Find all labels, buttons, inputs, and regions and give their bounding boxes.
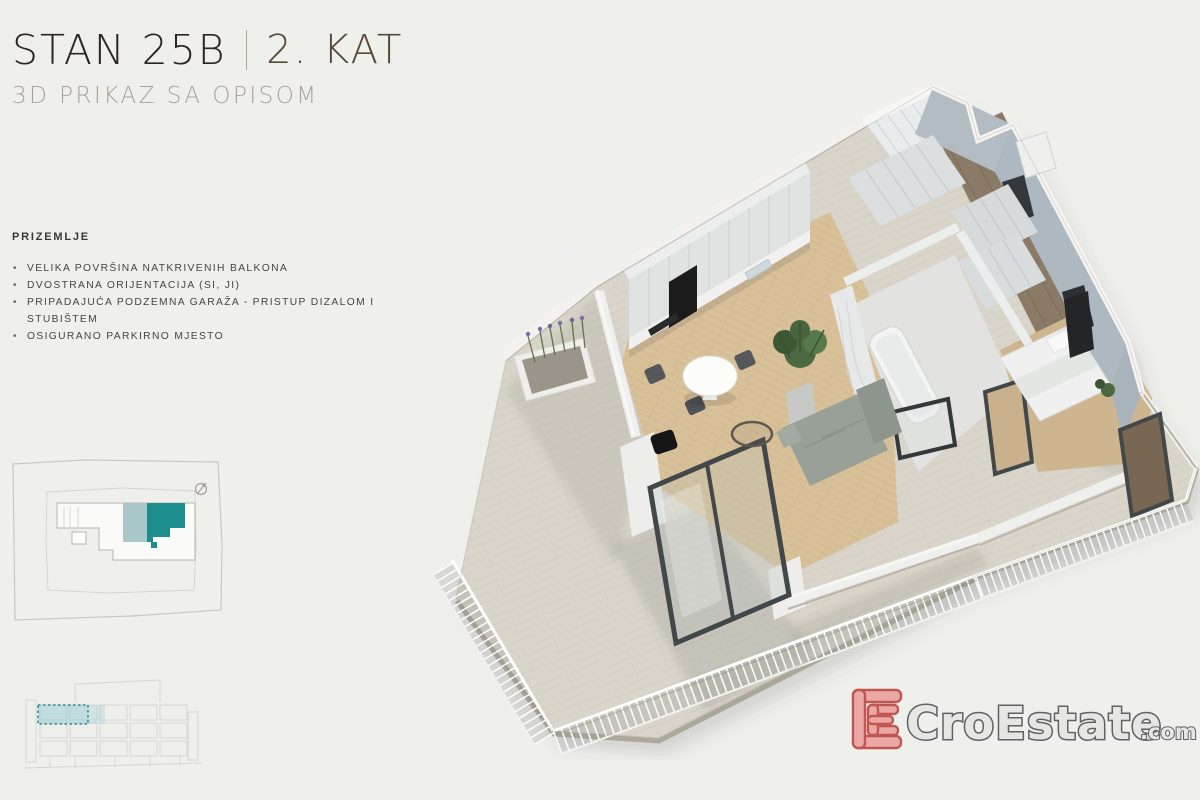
adjacent-unit-highlight <box>123 503 147 542</box>
feature-item: DVOSTRANA ORIJENTACIJA (SI, JI) <box>12 277 394 294</box>
brochure-page: STAN 25B 2. KAT 3D PRIKAZ SA OPISOM PRIZ… <box>0 0 1200 800</box>
feature-item: VELIKA POVRŠINA NATKRIVENIH BALKONA <box>12 260 394 277</box>
site-plan-diagram <box>12 452 237 637</box>
feature-list: PRIZEMLJE VELIKA POVRŠINA NATKRIVENIH BA… <box>12 231 394 345</box>
floor-title: 2. KAT <box>266 27 403 73</box>
feature-item: PRIPADAJUĆA PODZEMNA GARAŽA - PRISTUP DI… <box>12 294 394 328</box>
floorplan-3d-render <box>430 80 1200 760</box>
title-divider <box>246 30 248 70</box>
coffee-table <box>732 422 772 446</box>
croestate-tld-text: .com <box>1140 720 1197 744</box>
apartment-entry-mark <box>151 542 157 548</box>
feature-list-heading: PRIZEMLJE <box>12 231 394 243</box>
croestate-brand-text: CroEstate <box>906 697 1163 750</box>
compass-icon <box>196 483 207 495</box>
croestate-watermark: CroEstate .com <box>845 683 1200 763</box>
building-elevation-diagram <box>20 672 220 794</box>
page-subtitle: 3D PRIKAZ SA OPISOM <box>12 83 403 109</box>
unit-highlight-dashed <box>38 705 88 724</box>
shower-glass <box>893 399 955 458</box>
header: STAN 25B 2. KAT 3D PRIKAZ SA OPISOM <box>12 26 403 109</box>
unit-highlight-extension <box>88 705 105 724</box>
apartment-title: STAN 25B <box>12 26 227 74</box>
building-core <box>72 532 86 544</box>
feature-item: OSIGURANO PARKIRNO MJESTO <box>12 328 394 345</box>
croestate-logo-icon <box>853 690 901 748</box>
dining-table <box>683 356 737 406</box>
